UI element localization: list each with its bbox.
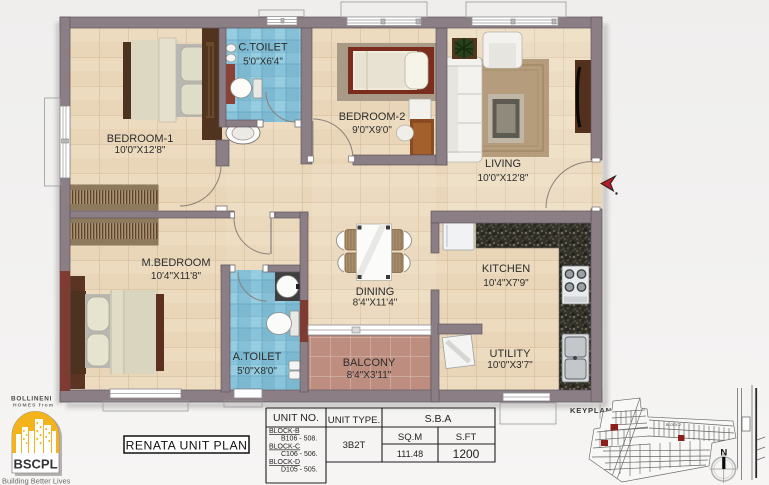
svg-text:SQ.M: SQ.M bbox=[398, 432, 422, 443]
svg-text:B106 - 508.: B106 - 508. bbox=[281, 436, 317, 443]
svg-text:5'0"X6'4": 5'0"X6'4" bbox=[243, 57, 283, 68]
svg-text:BEDROOM-2: BEDROOM-2 bbox=[339, 111, 406, 123]
svg-text:BSCPL: BSCPL bbox=[13, 457, 57, 472]
svg-text:BLOCK-C: BLOCK-C bbox=[269, 444, 300, 451]
svg-text:KITCHEN: KITCHEN bbox=[482, 263, 530, 275]
svg-text:BLOCK-D: BLOCK-D bbox=[269, 459, 300, 466]
svg-text:BLOCK-B: BLOCK-B bbox=[269, 428, 300, 435]
svg-text:D105 - 505.: D105 - 505. bbox=[281, 467, 318, 474]
svg-text:DINING: DINING bbox=[356, 286, 395, 298]
svg-text:A.TOILET: A.TOILET bbox=[233, 351, 282, 363]
svg-text:C106 - 506.: C106 - 506. bbox=[281, 451, 318, 458]
svg-text:UNIT NO.: UNIT NO. bbox=[273, 412, 319, 424]
svg-text:M.BEDROOM: M.BEDROOM bbox=[141, 257, 210, 269]
svg-text:8'4"X3'11": 8'4"X3'11" bbox=[347, 370, 392, 381]
svg-text:S.B.A: S.B.A bbox=[425, 413, 452, 425]
svg-text:LIVING: LIVING bbox=[485, 158, 521, 170]
svg-text:S.FT: S.FT bbox=[456, 432, 477, 443]
svg-text:BLOCK-2: BLOCK-2 bbox=[666, 423, 681, 427]
svg-text:BOLLINENI: BOLLINENI bbox=[11, 396, 52, 403]
svg-text:1200: 1200 bbox=[453, 447, 480, 461]
svg-text:UNIT TYPE.: UNIT TYPE. bbox=[328, 415, 380, 426]
svg-text:Building Better Lives: Building Better Lives bbox=[2, 477, 71, 485]
svg-text:10'0"X3'7": 10'0"X3'7" bbox=[487, 360, 533, 371]
svg-text:10'0"X12'8": 10'0"X12'8" bbox=[478, 173, 529, 184]
svg-text:111.48: 111.48 bbox=[397, 449, 423, 459]
svg-text:10'4"X7'9": 10'4"X7'9" bbox=[483, 278, 529, 289]
svg-text:BEDROOM-1: BEDROOM-1 bbox=[107, 133, 174, 145]
svg-text:10'0"X12'8": 10'0"X12'8" bbox=[115, 145, 166, 156]
svg-text:8'4"X11'4": 8'4"X11'4" bbox=[353, 298, 398, 309]
svg-text:RENATA UNIT PLAN: RENATA UNIT PLAN bbox=[126, 439, 248, 453]
svg-text:HOMES from: HOMES from bbox=[13, 403, 54, 409]
svg-text:10'4"X11'8": 10'4"X11'8" bbox=[151, 271, 202, 282]
svg-text:C.TOILET: C.TOILET bbox=[238, 42, 288, 54]
svg-text:5'0"X8'0": 5'0"X8'0" bbox=[237, 366, 277, 377]
svg-text:BALCONY: BALCONY bbox=[343, 357, 396, 369]
svg-text:3B2T: 3B2T bbox=[343, 440, 366, 451]
svg-text:UTILITY: UTILITY bbox=[490, 348, 532, 360]
svg-text:9'0"X9'0": 9'0"X9'0" bbox=[352, 125, 392, 136]
